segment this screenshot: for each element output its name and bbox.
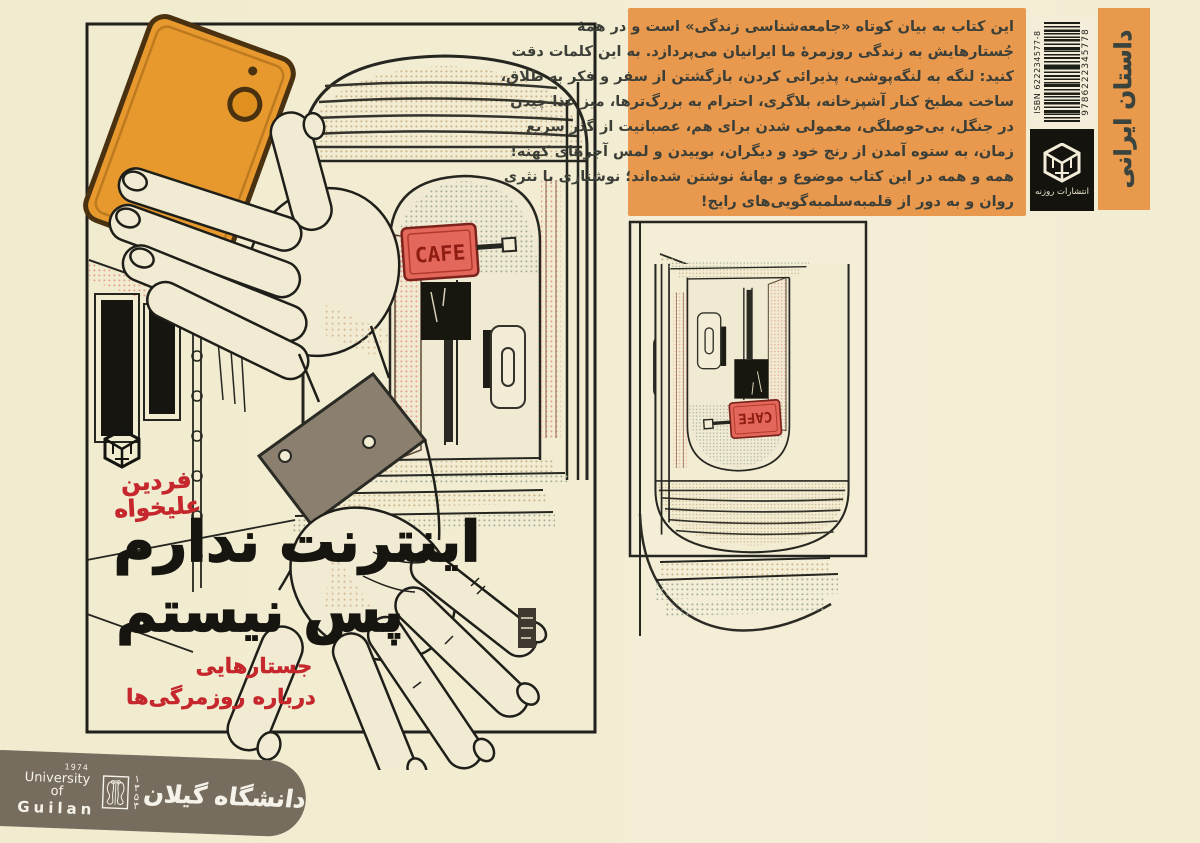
barcode-icon [1044,22,1080,122]
description-line: زمان، به ستوه آمدن از رنج خود و دیگران، … [638,140,1014,165]
category-strip: داستان ایرانی [1098,8,1150,210]
rowzaneh-logo-icon [103,428,141,470]
category-label: داستان ایرانی [1098,9,1150,209]
description-line: روان و به دور از قلمبه‌سلمبه‌گویی‌های را… [638,190,1014,215]
university-emblem-icon [101,762,130,823]
publisher-name: انتشارات روزنه [1035,187,1089,197]
publisher-block: انتشارات روزنه [1030,129,1094,211]
book-subtitle-line2: درباره روزمرگی‌ها [115,685,327,709]
rowzaneh-logo-icon [1043,143,1081,183]
back-description-box: این کتاب به بیان کوتاه «جامعه‌شناسی زندگ… [628,8,1026,216]
book-subtitle-line1: جستارهایی [181,654,327,678]
description-line: همه و همه در این کتاب موضوع و بهانۀ نوشت… [638,165,1014,190]
description-line: در جنگل، بی‌حوصلگی، معمولی شدن برای هم، … [638,115,1014,140]
book-title-line2: پس نیستم [95,584,425,643]
description-line: این کتاب به بیان کوتاه «جامعه‌شناسی زندگ… [638,15,1014,40]
isbn-barcode-panel: ISBN 622234577-8 9786222345778 [1030,18,1094,126]
description-line: ساخت مطبخ کنار آشپزخانه، بلاگری، احترام … [638,90,1014,115]
university-year-fa: ۱۳۵۳ [132,775,140,811]
isbn-label: ISBN 622234577-8 [1033,20,1043,124]
university-name-en: 1974 University of Guilan [17,762,97,818]
description-line: کنید: لنگه به لنگه‌پوشی، پذیرائی کردن، ب… [638,65,1014,90]
university-name-fa: دانشگاه گیلان [142,780,308,814]
isbn-number: 9786222345778 [1081,20,1092,124]
book-title-line1: اینترنت ندارم [95,514,499,573]
description-line: جُستارهایش به زندگی روزمرۀ ما ایرانیان م… [638,40,1014,65]
university-banner: 1974 University of Guilan ۱۳۵۳ دانشگاه گ… [0,749,307,837]
artist-seal [518,608,536,648]
back-cover-illustration [626,218,908,648]
